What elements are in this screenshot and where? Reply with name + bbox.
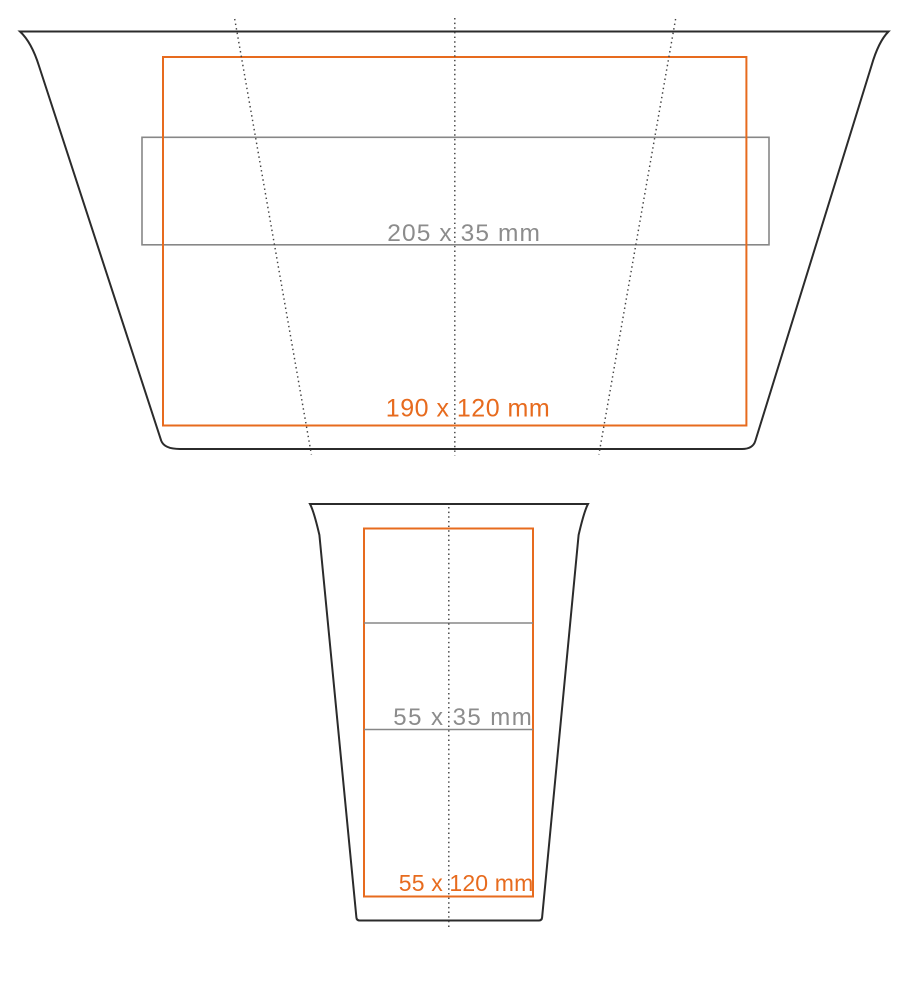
svg-text:55 x 35 mm: 55 x 35 mm bbox=[393, 704, 533, 731]
svg-text:190 x 120 mm: 190 x 120 mm bbox=[386, 395, 550, 423]
svg-text:55 x 120 mm: 55 x 120 mm bbox=[399, 870, 534, 896]
svg-text:205 x 35 mm: 205 x 35 mm bbox=[387, 220, 541, 247]
